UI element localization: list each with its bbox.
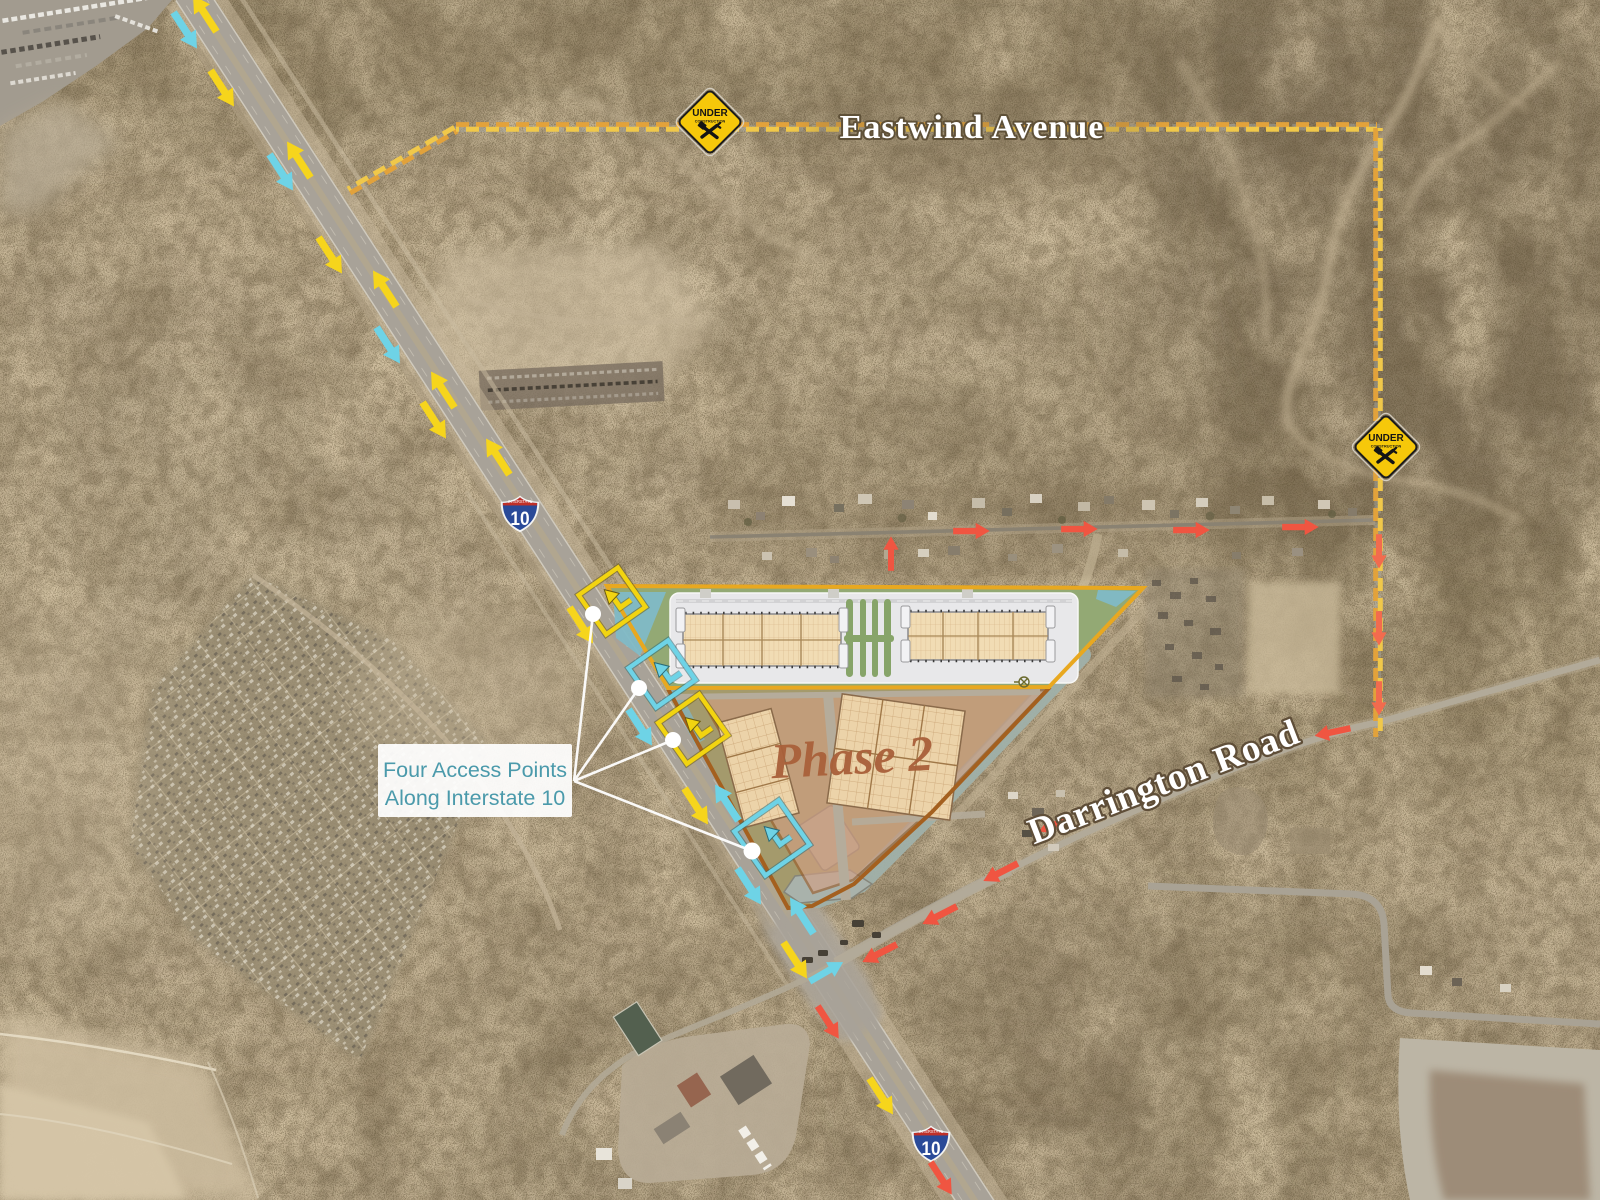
svg-text:10: 10	[921, 1138, 940, 1159]
svg-text:UNDER: UNDER	[1368, 433, 1404, 444]
svg-text:INTERSTATE: INTERSTATE	[919, 1129, 943, 1134]
svg-text:UNDER: UNDER	[692, 108, 728, 119]
svg-text:INTERSTATE: INTERSTATE	[508, 499, 532, 504]
svg-text:Eastwind Avenue: Eastwind Avenue	[840, 109, 1105, 146]
svg-text:Four Access Points: Four Access Points	[383, 758, 567, 782]
svg-text:10: 10	[510, 508, 529, 529]
svg-text:Along Interstate 10: Along Interstate 10	[385, 786, 566, 810]
svg-text:Phase 2: Phase 2	[768, 725, 934, 789]
